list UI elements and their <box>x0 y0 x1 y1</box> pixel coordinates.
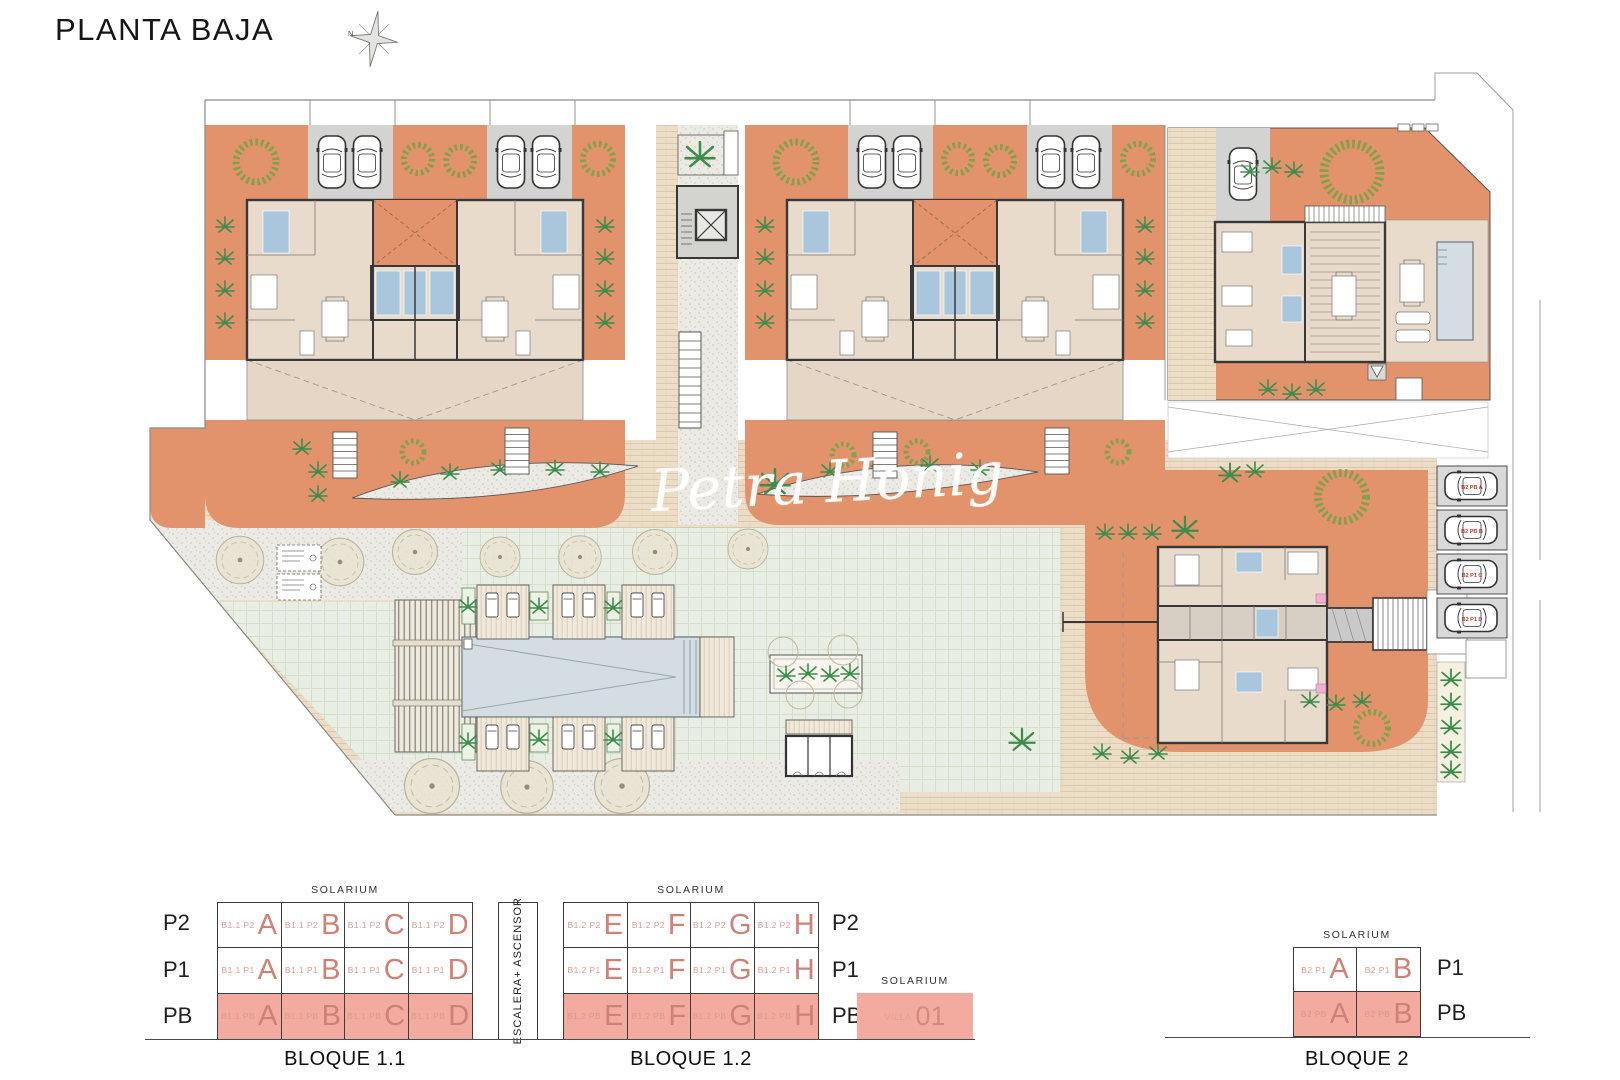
unit-cell: B1.2 P2E <box>564 903 628 948</box>
hedge-strip <box>1437 640 1506 782</box>
unit-cell: B1.2 P1E <box>564 948 628 993</box>
solarium-label-villa: SOLARIUM <box>857 975 973 987</box>
unit-cell: B1.2 PBF <box>628 994 692 1039</box>
ground-line-right <box>1165 1037 1530 1038</box>
floor-label-pb-left: PB <box>163 1003 192 1029</box>
bloque-1-2-plan <box>745 125 1165 420</box>
unit-cell: B1.1 P1C <box>345 948 409 993</box>
unit-cell: B1.2 PBH <box>755 994 819 1039</box>
unit-cell: B1.1 P2C <box>345 903 409 948</box>
floor-plan-page: PLANTA BAJA N <box>0 0 1620 1080</box>
bloque-2-table: B2 P1A B2 P1B B2 PBA B2 PBB <box>1293 947 1421 1037</box>
parking-label-2: B2 PB B <box>1461 529 1483 535</box>
unit-cell: B1.2 P1H <box>755 948 819 993</box>
ground-line-left <box>145 1039 975 1040</box>
unit-cell: B1.2 P2F <box>628 903 692 948</box>
unit-cell: B1.1 PBD <box>409 994 473 1039</box>
parking-label-1: B2 PB A <box>1461 485 1483 491</box>
bloque-1-1-plan <box>205 125 625 420</box>
floor-label-p1-b2: P1 <box>1437 955 1464 981</box>
pool-wc-kiosk <box>786 720 852 776</box>
parking-label-3: B2 P1 C <box>1462 573 1483 579</box>
bloque-1-1-table: B1.1 P2A B1.1 P2B B1.1 P2C B1.1 P2D B1.1… <box>217 902 473 1040</box>
solarium-label-b11: SOLARIUM <box>217 884 473 896</box>
unit-cell: B1.1 PBC <box>345 994 409 1039</box>
unit-cell: B2 PBA <box>1294 992 1357 1036</box>
unit-cell: B1.1 P2D <box>409 903 473 948</box>
unit-cell: B1.2 P1F <box>628 948 692 993</box>
floor-label-p1-left: P1 <box>163 957 190 983</box>
bloque-2-caption: BLOQUE 2 <box>1293 1048 1421 1071</box>
unit-cell: B1.1 P1B <box>282 948 346 993</box>
unit-cell: B1.2 P2G <box>691 903 755 948</box>
unit-cell: B2 PBB <box>1357 992 1420 1036</box>
unit-cell: B1.1 P1A <box>218 948 282 993</box>
unit-cell: B1.2 PBE <box>564 994 628 1039</box>
terrace-bloque-1-1 <box>150 420 638 528</box>
floor-label-p1-right: P1 <box>832 957 859 983</box>
unit-cell: B1.2 P1G <box>691 948 755 993</box>
bloque-1-1-caption: BLOQUE 1.1 <box>217 1048 473 1071</box>
unit-cell: B1.1 PBA <box>218 994 282 1039</box>
floor-label-p2-left: P2 <box>163 910 190 936</box>
bloque-1-2-caption: BLOQUE 1.2 <box>563 1048 819 1071</box>
floor-label-pb-b2: PB <box>1437 1000 1466 1026</box>
unit-cell: B2 P1A <box>1294 948 1357 992</box>
bloque-2-parking-bays: B2 PB A B2 PB B B2 P1 C B2 P1 D <box>1437 466 1507 638</box>
floor-label-p2-right: P2 <box>832 910 859 936</box>
solarium-label-b12: SOLARIUM <box>563 884 819 896</box>
bloque-1-2-table: B1.2 P2E B1.2 P2F B1.2 P2G B1.2 P2H B1.2… <box>563 902 819 1040</box>
unit-cell: B1.2 P2H <box>755 903 819 948</box>
escalera-ascensor-box: ESCALERA+ ASCENSOR <box>498 902 538 1040</box>
unit-cell: B1.1 P1D <box>409 948 473 993</box>
parking-label-4: B2 P1 D <box>1462 617 1483 623</box>
unit-cell: B1.2 PBG <box>691 994 755 1039</box>
swimming-pool <box>462 637 734 717</box>
unit-cell: B1.1 P2B <box>282 903 346 948</box>
villa-01-plan <box>1168 124 1490 458</box>
villa-01-box: VILLA 01 <box>857 993 973 1040</box>
unit-cell: B1.1 PBB <box>282 994 346 1039</box>
bloque-2-plan <box>1063 462 1467 763</box>
unit-cell: B1.1 P2A <box>218 903 282 948</box>
unit-cell: B2 P1B <box>1357 948 1420 992</box>
solarium-label-b2: SOLARIUM <box>1293 929 1421 941</box>
